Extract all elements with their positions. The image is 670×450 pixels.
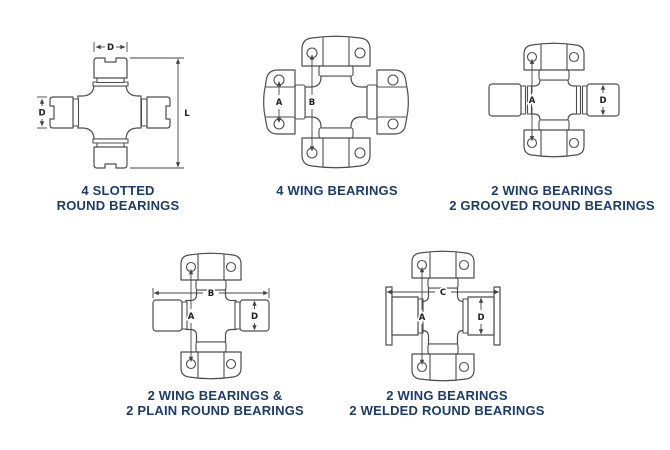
caption-line: 4 SLOTTED	[18, 183, 218, 198]
dim-label-bearing-diameter: D	[251, 312, 258, 322]
groove-ring	[521, 86, 526, 114]
dim-label-cross-span: B	[309, 98, 315, 108]
ujoint-2-wing-2-plain-drawing: B A D	[108, 216, 320, 384]
cross-body	[78, 84, 141, 140]
top-neck	[319, 66, 353, 76]
left-welded-round-bearing	[392, 297, 418, 335]
ujoint-4-slotted-round-drawing: D D L	[12, 36, 212, 176]
ujoint-2-wing-2-welded-drawing: C A D	[332, 216, 550, 386]
groove-ring	[577, 86, 581, 114]
left-grooved-round-bearing	[489, 84, 521, 116]
dim-label-bearing-diameter: D	[477, 313, 484, 323]
cross-body	[531, 80, 577, 120]
dim-label-overall-width: B	[208, 289, 214, 299]
right-weld-flange	[494, 287, 500, 345]
caption-line: 2 GROOVED ROUND BEARINGS	[446, 198, 658, 213]
caption-line: ROUND BEARINGS	[18, 198, 218, 213]
right-cap-band	[142, 99, 148, 126]
dim-label-hole-span: A	[276, 98, 283, 108]
bolt-hole	[227, 360, 236, 369]
left-slotted-cap	[50, 97, 73, 128]
bolt-hole	[570, 53, 579, 62]
dim-label-overall-width: C	[440, 288, 446, 298]
bolt-hole	[388, 75, 398, 85]
bottom-neck	[319, 128, 353, 138]
left-neck	[295, 85, 305, 119]
top-neck	[539, 70, 569, 80]
bolt-hole	[355, 148, 365, 158]
caption-line: 2 WING BEARINGS &	[109, 388, 321, 403]
caption-line: 4 WING BEARINGS	[237, 183, 437, 198]
bolt-hole	[460, 363, 469, 372]
ujoint-2-wing-2-grooved-drawing: A D	[452, 10, 664, 160]
caption-2-wing-2-welded: 2 WING BEARINGS 2 WELDED ROUND BEARINGS	[339, 388, 555, 418]
top-slotted-cap	[94, 58, 127, 78]
ujoint-4-wing-drawing: A B	[233, 10, 443, 174]
top-neck	[428, 278, 458, 288]
caption-2-wing-2-plain: 2 WING BEARINGS & 2 PLAIN ROUND BEARINGS	[109, 388, 321, 418]
right-collar	[235, 302, 240, 329]
groove-ring	[583, 86, 588, 114]
bolt-hole	[570, 139, 579, 148]
left-cap-band	[73, 99, 79, 126]
bolt-hole	[227, 263, 236, 272]
bottom-neck	[428, 344, 458, 354]
bearing-styles-figure: D D L 4 SLOTTED ROUND BEARINGS	[0, 0, 670, 450]
dim-label-overall-length: L	[184, 109, 190, 119]
caption-2-wing-2-grooved: 2 WING BEARINGS 2 GROOVED ROUND BEARINGS	[446, 183, 658, 213]
dim-label-cross-span: A	[419, 313, 426, 323]
dim-label-cross-span: A	[529, 96, 536, 106]
left-plain-round-bearing	[153, 300, 182, 331]
dim-label-cross-span: A	[188, 312, 195, 322]
caption-4-wing: 4 WING BEARINGS	[237, 183, 437, 198]
right-collar	[463, 299, 468, 333]
caption-line: 2 WELDED ROUND BEARINGS	[339, 403, 555, 418]
left-collar	[182, 302, 187, 329]
caption-line: 2 PLAIN ROUND BEARINGS	[109, 403, 321, 418]
caption-line: 2 WING BEARINGS	[339, 388, 555, 403]
bolt-hole	[355, 48, 365, 58]
top-cap-band	[97, 78, 124, 83]
right-slotted-cap	[147, 97, 170, 128]
bottom-neck	[539, 120, 569, 130]
left-weld-flange	[386, 287, 392, 345]
dim-label-bearing-diameter: D	[599, 96, 606, 106]
caption-4-slotted-round: 4 SLOTTED ROUND BEARINGS	[18, 183, 218, 213]
right-neck	[367, 85, 377, 119]
dim-label-cap-width: D	[107, 43, 114, 53]
bottom-cap-lip	[93, 139, 128, 143]
caption-line: 2 WING BEARINGS	[446, 183, 658, 198]
bolt-hole	[388, 119, 398, 129]
bottom-slotted-cap	[94, 147, 127, 168]
bolt-hole	[460, 261, 469, 270]
dim-label-cap-diameter: D	[38, 109, 45, 119]
bottom-neck	[196, 342, 226, 352]
